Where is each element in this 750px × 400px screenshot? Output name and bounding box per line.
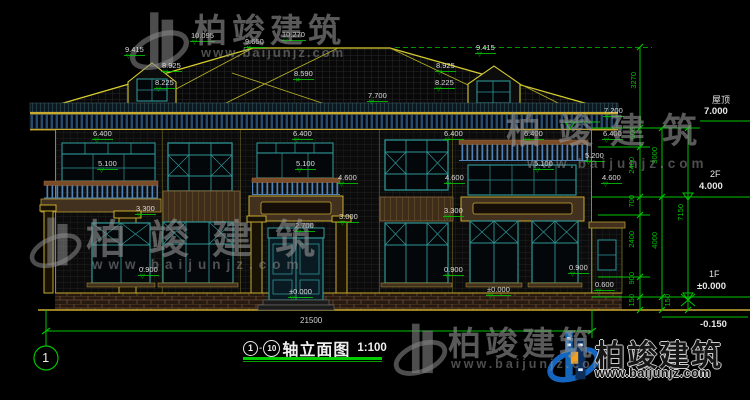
- level-ground-value: -0.150: [700, 320, 727, 330]
- level-roof-label: 屋顶: [712, 96, 730, 105]
- level-marker-icon: ▽: [446, 182, 451, 189]
- dimension-figure: 700: [628, 195, 636, 208]
- level-2f-label: 2F: [710, 170, 721, 179]
- level-2f-value: 4.000: [699, 182, 723, 192]
- level-1f-value: ±0.000: [697, 282, 726, 292]
- level-marker-icon: ▽: [445, 274, 450, 281]
- level-marker-icon: ▽: [603, 182, 608, 189]
- dimension-figure: 4000: [651, 232, 659, 249]
- level-marker-icon: ▽: [340, 221, 345, 228]
- level-marker-icon: ▽: [126, 54, 131, 61]
- level-marker-icon: ▽: [570, 272, 575, 279]
- cad-elevation-viewport: 9.415▽8.925▽8.225▽10.095▽9.650✕10.270▽8.…: [0, 0, 750, 400]
- dimension-figure: 150: [664, 294, 672, 307]
- title-underline-thin: [243, 361, 382, 362]
- level-marker-icon: ▽: [297, 168, 302, 175]
- watermark-right-text: 柏竣建筑: [506, 103, 714, 154]
- level-marker-icon: ▽: [339, 182, 344, 189]
- dimension-figure: 3270: [630, 72, 638, 89]
- title-axis-dash: -: [259, 343, 262, 354]
- level-marker-icon: ▽: [156, 87, 161, 94]
- level-marker-icon: ▽: [99, 168, 104, 175]
- level-marker-icon: ▽: [488, 294, 493, 301]
- watermark-right-url: www.baijunjz.com: [527, 156, 708, 171]
- level-marker-icon: ✕: [295, 78, 300, 85]
- level-marker-icon: ▽: [369, 100, 374, 107]
- watermark-middle-url: www.baijunjz.com: [92, 257, 305, 272]
- dimension-figure: 7150: [677, 204, 685, 221]
- total-width-dimension: 21500: [300, 317, 322, 325]
- watermark-bottom-url: www.baijunjz.com: [451, 357, 607, 371]
- level-marker-icon: ▽: [163, 70, 168, 77]
- level-marker-icon: ▽: [445, 138, 450, 145]
- level-marker-icon: ▽: [294, 138, 299, 145]
- title-axis-end-bubble: 10: [263, 340, 280, 357]
- dimension-figure: 150: [628, 294, 636, 307]
- level-marker-icon: ▽: [94, 138, 99, 145]
- watermark-top-url: www.baijunjz.com: [201, 45, 345, 60]
- brand-url: www.baijunjz.com: [595, 366, 711, 380]
- title-underline-thick: [243, 357, 382, 360]
- title-scale: 1:100: [357, 342, 386, 354]
- level-marker-icon: ▽: [140, 274, 145, 281]
- level-marker-icon: ▽: [290, 296, 295, 303]
- dimension-figure: 900: [628, 272, 636, 285]
- title-axis-start-bubble: 1: [243, 341, 258, 356]
- watermark-logo-bottom-icon: [392, 324, 450, 380]
- level-marker-icon: ▽: [445, 215, 450, 222]
- axis-bubble-1: 1: [42, 351, 49, 364]
- dimension-figure: 2400: [628, 231, 636, 248]
- level-marker-icon: ▽: [596, 289, 601, 296]
- level-marker-icon: ▽: [437, 70, 442, 77]
- level-marker-icon: ▽: [436, 87, 441, 94]
- level-1f-label: 1F: [709, 270, 720, 279]
- level-marker-icon: ▽: [477, 52, 482, 59]
